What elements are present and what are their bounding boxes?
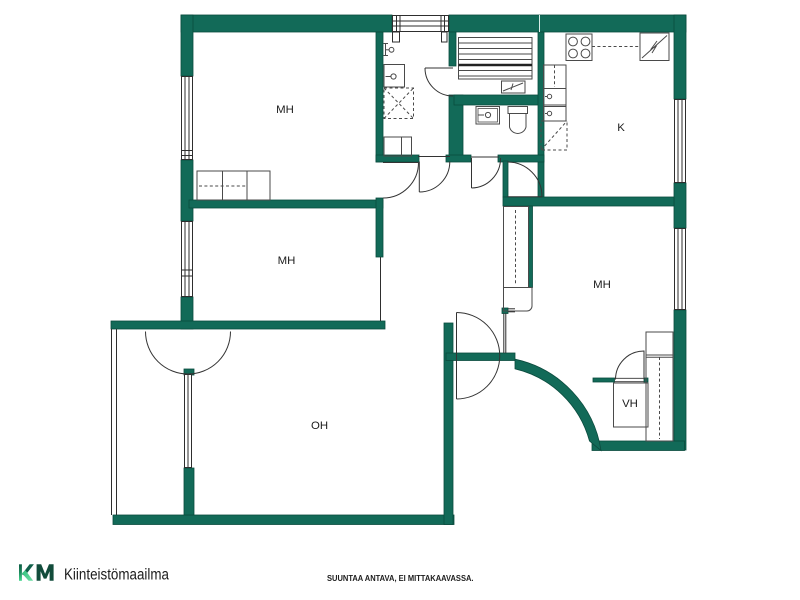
svg-text:K: K: [617, 122, 625, 134]
svg-text:VH: VH: [622, 398, 638, 410]
svg-text:MH: MH: [593, 279, 611, 291]
svg-text:Kiinteistömaailma: Kiinteistömaailma: [64, 567, 169, 584]
svg-text:OH: OH: [311, 420, 328, 432]
svg-text:MH: MH: [276, 104, 294, 116]
svg-text:SUUNTAA ANTAVA, EI MITTAKAAVAS: SUUNTAA ANTAVA, EI MITTAKAAVASSA.: [327, 574, 474, 583]
svg-text:MH: MH: [278, 255, 296, 267]
